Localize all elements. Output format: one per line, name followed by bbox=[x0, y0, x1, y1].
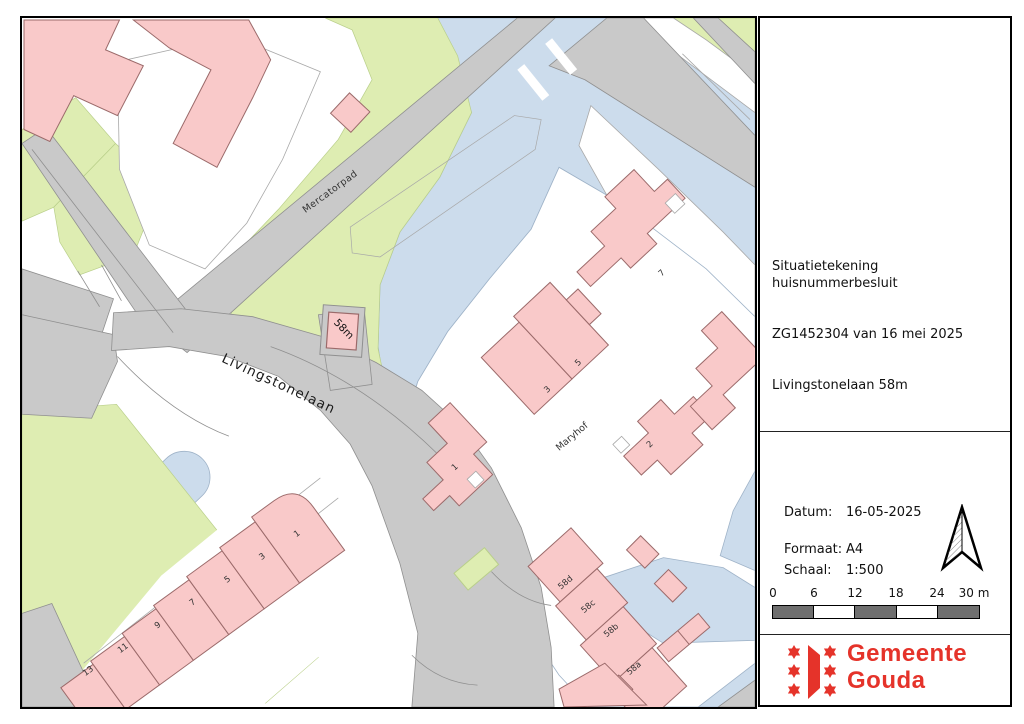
schaal-label: Schaal: bbox=[784, 563, 844, 578]
datum-label: Datum: bbox=[784, 505, 844, 520]
logo-line-2: Gouda bbox=[847, 667, 967, 694]
scale-tick: 24 bbox=[929, 586, 944, 600]
scale-tick: 18 bbox=[888, 586, 903, 600]
title-panel: Situatietekening huisnummerbesluit ZG145… bbox=[758, 16, 1012, 707]
scale-segment bbox=[897, 606, 938, 618]
scale-bar bbox=[772, 605, 980, 619]
scale-segment bbox=[938, 606, 979, 618]
scale-tick: 0 bbox=[769, 586, 777, 600]
title-line-2: ZG1452304 van 16 mei 2025 bbox=[772, 326, 1010, 343]
title-line-1: Situatietekening huisnummerbesluit bbox=[772, 258, 1010, 292]
scale-tick: 30 m bbox=[959, 586, 990, 600]
panel-divider bbox=[760, 431, 1010, 432]
scale-tick: 12 bbox=[847, 586, 862, 600]
page: Mercatorpad Livingstonelaan Maryhof 58m … bbox=[0, 0, 1024, 724]
north-arrow-icon bbox=[940, 504, 984, 578]
map-frame: Mercatorpad Livingstonelaan Maryhof 58m … bbox=[20, 16, 757, 709]
scale-ticks: 0 6 12 18 24 30 m bbox=[760, 586, 1010, 600]
title-block: Situatietekening huisnummerbesluit ZG145… bbox=[772, 224, 1010, 428]
logo-text: Gemeente Gouda bbox=[847, 640, 967, 694]
schaal-value: 1:500 bbox=[846, 563, 946, 578]
scale-segment bbox=[855, 606, 896, 618]
formaat-label: Formaat: bbox=[784, 542, 844, 557]
datum-value: 16-05-2025 bbox=[846, 505, 946, 520]
scale-tick: 6 bbox=[810, 586, 818, 600]
gouda-coat-of-arms-icon bbox=[784, 642, 842, 702]
scale-segment bbox=[814, 606, 855, 618]
logo: Gemeente Gouda bbox=[760, 634, 1010, 707]
map-canvas: Mercatorpad Livingstonelaan Maryhof 58m … bbox=[22, 18, 755, 707]
lane-line bbox=[117, 357, 228, 437]
title-line-3: Livingstonelaan 58m bbox=[772, 377, 1010, 394]
logo-line-1: Gemeente bbox=[847, 640, 967, 667]
scale-segment bbox=[773, 606, 814, 618]
formaat-value: A4 bbox=[846, 542, 946, 557]
